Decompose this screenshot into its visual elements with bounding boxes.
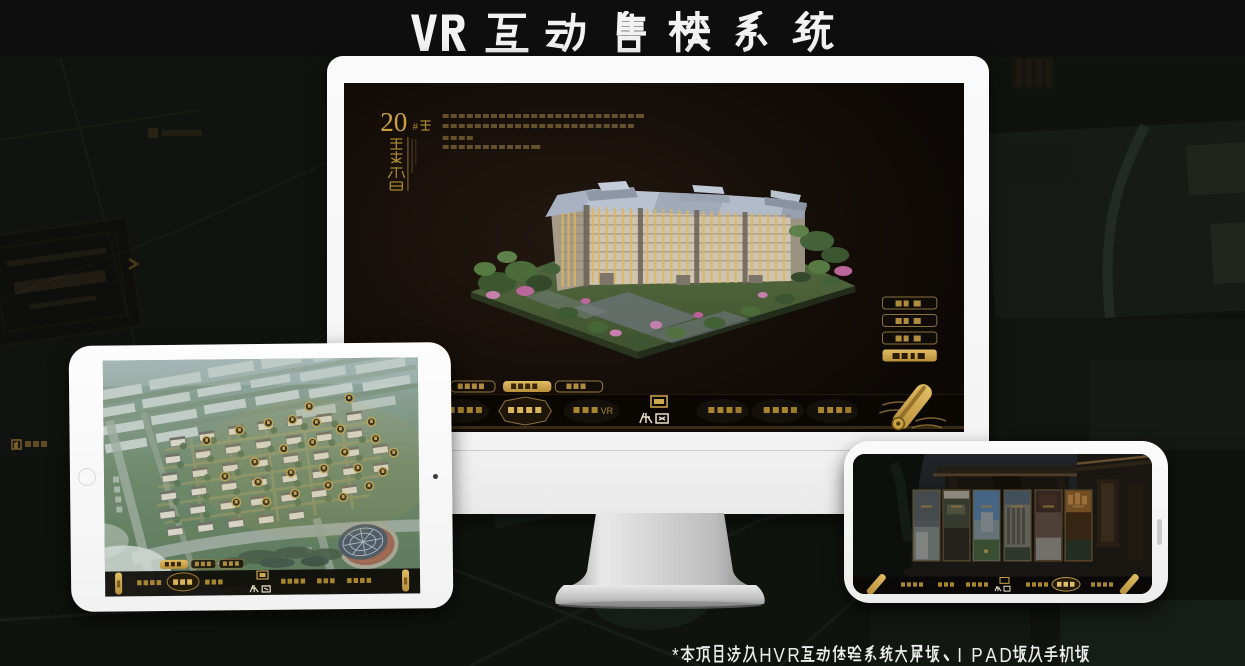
svg-text:P: P (971, 644, 982, 666)
svg-text:VR: VR (601, 406, 614, 416)
svg-text:I: I (957, 644, 962, 666)
svg-text:R: R (787, 644, 799, 666)
svg-text:V: V (773, 644, 785, 666)
svg-text:20: 20 (380, 107, 407, 137)
svg-text:*: * (672, 644, 679, 666)
svg-text:#: # (412, 121, 418, 133)
svg-text:H: H (759, 644, 771, 666)
svg-text:D: D (999, 644, 1011, 666)
svg-text:A: A (985, 644, 997, 666)
